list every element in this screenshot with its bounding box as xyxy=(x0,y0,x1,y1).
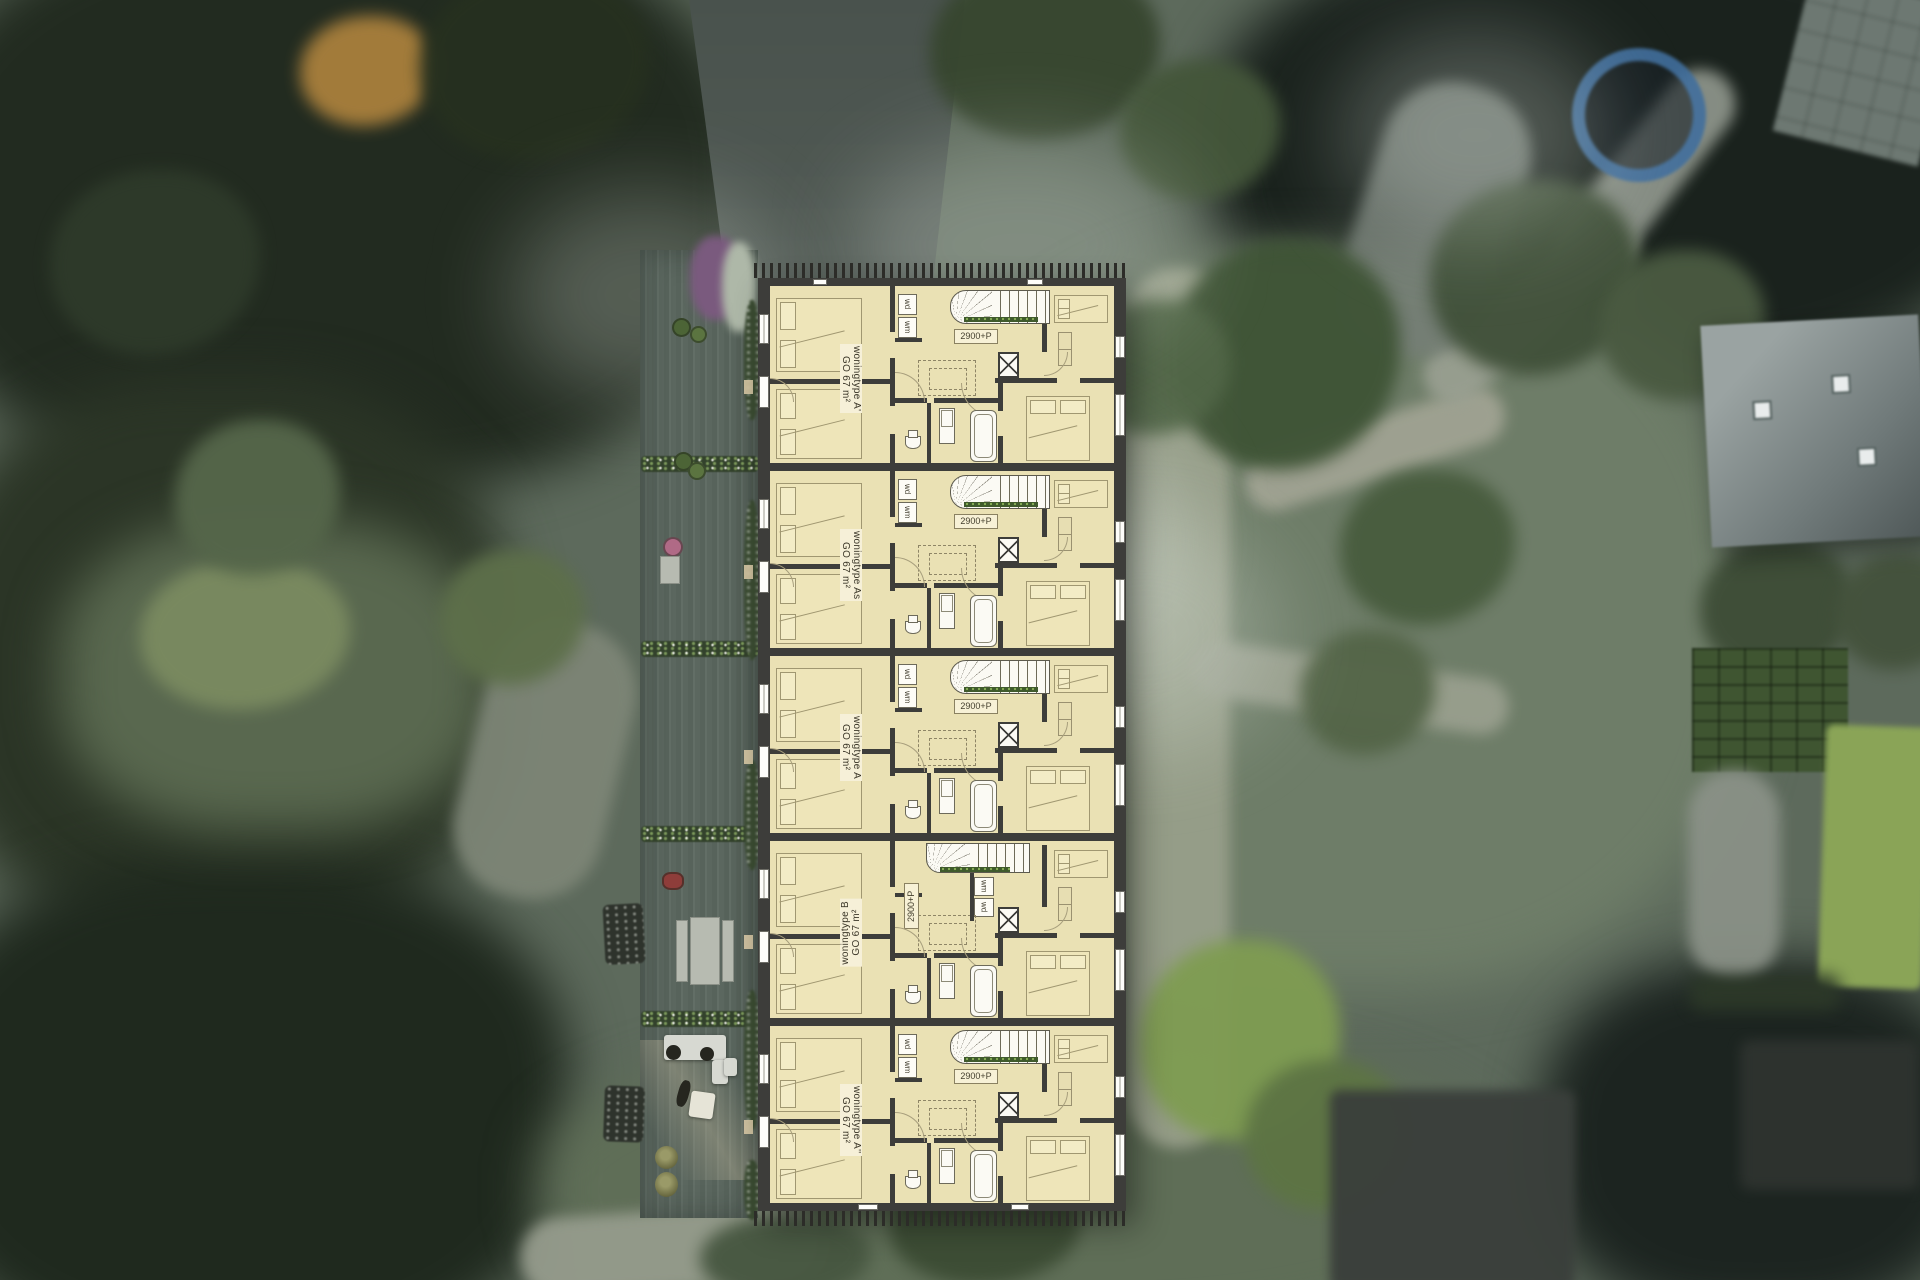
rattan-pouf xyxy=(655,1172,678,1197)
interior-wall xyxy=(998,568,1003,596)
washer-box: wd xyxy=(974,898,994,917)
window-east xyxy=(1115,521,1125,543)
bed-pillow xyxy=(780,1042,796,1070)
bed-pillow xyxy=(1060,955,1086,969)
dwelling-unit-01: wd wm 2900+P xyxy=(758,286,1126,471)
unit-area-label: GO 67 m² xyxy=(840,529,851,601)
interior-wall xyxy=(927,1143,931,1203)
bed xyxy=(1026,1136,1090,1201)
stair-green-strip xyxy=(964,317,1038,322)
unit-label: woningtype A'' GO 67 m² xyxy=(840,1084,862,1156)
bed xyxy=(1026,396,1090,461)
toilet xyxy=(905,806,921,819)
person-seated xyxy=(666,1045,681,1060)
planter-pot xyxy=(690,326,707,343)
floor-height-label: 2900+P xyxy=(954,514,998,529)
entry-door-west xyxy=(759,931,769,963)
interior-wall xyxy=(890,1174,895,1203)
unit-type-label: woningtype B xyxy=(840,899,851,967)
interior-wall xyxy=(890,619,895,648)
interior-wall xyxy=(890,1026,895,1072)
interior-wall xyxy=(995,378,1057,383)
unit-area-label: GO 67 m² xyxy=(840,1084,851,1156)
door-swing-arc xyxy=(1044,537,1068,561)
washer-box: wm xyxy=(898,317,917,338)
closet-wall xyxy=(895,338,922,342)
interior-wall xyxy=(890,471,895,517)
ventilation-shaft xyxy=(998,352,1019,378)
bed xyxy=(1026,766,1090,831)
bathroom-cabinet xyxy=(939,408,955,444)
interior-wall xyxy=(927,773,931,833)
stair-green-strip xyxy=(940,867,1010,872)
doormat xyxy=(744,1120,753,1134)
party-wall xyxy=(758,833,1126,841)
unit-area-label: GO 67 m² xyxy=(851,899,862,967)
floor-height-label: 2900+P xyxy=(954,699,998,714)
washer-box: wm xyxy=(898,502,917,523)
bathroom-cabinet xyxy=(939,593,955,629)
wall-east xyxy=(1114,656,1126,841)
toilet xyxy=(905,621,921,634)
unit-label: woningtype As GO 67 m² xyxy=(840,529,862,601)
interior-wall xyxy=(998,436,1003,463)
facade-window xyxy=(858,1204,878,1210)
floor-height-label: 2900+P xyxy=(954,1069,998,1084)
bed xyxy=(1054,1035,1108,1063)
bed-pillow xyxy=(1058,863,1070,874)
interior-wall xyxy=(998,938,1003,966)
unit-type-label: woningtype A xyxy=(851,714,862,781)
ventilation-shaft xyxy=(998,1092,1019,1118)
doormat xyxy=(744,565,753,579)
wall-east xyxy=(1114,1026,1126,1211)
bed-pillow xyxy=(780,984,796,1010)
bed xyxy=(1026,951,1090,1016)
bed-pillow xyxy=(780,799,796,825)
unit-area-label: GO 67 m² xyxy=(840,344,851,413)
bathtub xyxy=(970,410,997,462)
bed-pillow xyxy=(1058,493,1070,504)
bed-pillow xyxy=(1060,400,1086,414)
doormat xyxy=(744,380,753,394)
bathtub xyxy=(970,595,997,647)
window-east xyxy=(1115,579,1125,621)
bed-pillow xyxy=(1060,585,1086,599)
window-east xyxy=(1115,336,1125,358)
interior-wall xyxy=(770,379,890,384)
unit-type-label: woningtype A'' xyxy=(851,1084,862,1156)
interior-wall xyxy=(995,563,1057,568)
side-table xyxy=(724,1058,737,1076)
floor-height-label: 2900+P xyxy=(904,883,919,929)
bed-pillow xyxy=(780,340,796,368)
bed-pillow xyxy=(780,895,796,923)
unit-label: woningtype A' GO 67 m² xyxy=(840,344,862,413)
wall-east xyxy=(1114,841,1126,1026)
haze-patch xyxy=(1340,30,1610,240)
interior-wall xyxy=(770,749,890,754)
bed-pillow xyxy=(1060,1140,1086,1154)
door-swing-arc xyxy=(1044,722,1068,746)
unit-label: woningtype B GO 67 m² xyxy=(840,899,862,967)
interior-wall xyxy=(998,1123,1003,1151)
dryer-box: wd xyxy=(898,294,917,315)
bed xyxy=(1054,295,1108,323)
flat-roof-building xyxy=(1700,314,1920,547)
interior-wall xyxy=(995,933,1057,938)
interior-wall xyxy=(1080,933,1114,938)
facade-window xyxy=(813,279,827,285)
interior-wall xyxy=(998,806,1003,833)
deck-hedge-divider xyxy=(641,1011,758,1027)
bed-pillow xyxy=(1058,678,1070,689)
facade-wall-north xyxy=(758,278,1126,286)
interior-wall xyxy=(890,804,895,833)
bed-pillow xyxy=(1030,400,1056,414)
bed-pillow xyxy=(780,614,796,640)
bed-pillow xyxy=(780,710,796,738)
window-east xyxy=(1115,394,1125,436)
wall-east xyxy=(1114,286,1126,471)
interior-wall xyxy=(927,958,931,1018)
interior-wall xyxy=(995,748,1057,753)
interior-wall xyxy=(1080,1118,1114,1123)
interior-wall xyxy=(998,383,1003,411)
bed-pillow xyxy=(1058,308,1070,319)
dryer-box: wm xyxy=(974,877,994,896)
bed-pillow xyxy=(1030,770,1056,784)
picnic-table xyxy=(690,917,720,985)
interior-wall xyxy=(1080,563,1114,568)
entry-door-west xyxy=(759,376,769,408)
party-wall xyxy=(758,648,1126,656)
interior-wall xyxy=(890,286,895,332)
bed-pillow xyxy=(780,672,796,700)
interior-wall xyxy=(890,656,895,702)
window-east xyxy=(1115,891,1125,913)
window-east xyxy=(1115,764,1125,806)
dryer-box: wd xyxy=(898,1034,917,1055)
doormat xyxy=(744,935,753,949)
toilet xyxy=(905,1176,921,1189)
stair-green-strip xyxy=(964,502,1038,507)
dryer-box: wd xyxy=(898,479,917,500)
floor-height-label: 2900+P xyxy=(954,329,998,344)
bed-pillow xyxy=(1060,770,1086,784)
party-wall xyxy=(758,463,1126,471)
bed-pillow xyxy=(780,1080,796,1108)
party-wall xyxy=(758,1018,1126,1026)
dryer-box: wd xyxy=(898,664,917,685)
closet-wall xyxy=(895,708,922,712)
closet-wall xyxy=(970,873,974,921)
interior-wall xyxy=(770,1119,890,1124)
interior-wall xyxy=(890,841,895,887)
bed-pillow xyxy=(780,1169,796,1195)
planter-pot xyxy=(672,318,691,337)
ventilation-shaft xyxy=(998,722,1019,748)
aerial-site-plan: wd wm 2900+P xyxy=(0,0,1920,1280)
bathtub xyxy=(970,780,997,832)
deck-hedge-divider xyxy=(641,641,758,657)
apartment-building-floorplan: wd wm 2900+P xyxy=(758,278,1126,1211)
bed xyxy=(1054,850,1108,878)
facade-hatch-north xyxy=(754,263,1130,278)
door-swing-arc xyxy=(1044,352,1068,376)
dwelling-unit-03: wd wm 2900+P xyxy=(758,656,1126,841)
unit-label: woningtype A GO 67 m² xyxy=(840,714,862,781)
unit-stack: wd wm 2900+P xyxy=(758,286,1126,1211)
interior-wall xyxy=(998,991,1003,1018)
dwelling-unit-02: wd wm 2900+P xyxy=(758,471,1126,656)
interior-wall xyxy=(770,934,890,939)
bed-pillow xyxy=(780,487,796,515)
bed-pillow xyxy=(780,302,796,330)
bed-pillow xyxy=(1058,1048,1070,1059)
unit-area-label: GO 67 m² xyxy=(840,714,851,781)
interior-wall xyxy=(1080,748,1114,753)
planter-pot xyxy=(688,462,706,480)
window-east xyxy=(1115,1076,1125,1098)
doormat xyxy=(744,750,753,764)
interior-wall xyxy=(1080,378,1114,383)
toilet xyxy=(905,991,921,1004)
window-west xyxy=(759,684,769,714)
door-swing-arc xyxy=(1044,907,1068,931)
window-east xyxy=(1115,1134,1125,1176)
window-west xyxy=(759,314,769,344)
entry-door-west xyxy=(759,746,769,778)
stair-green-strip xyxy=(964,687,1038,692)
rattan-pouf xyxy=(655,1146,678,1169)
entry-door-west xyxy=(759,1116,769,1148)
deck-hedge-divider xyxy=(641,826,758,842)
facade-window xyxy=(1027,279,1043,285)
flower-pot-red xyxy=(662,872,684,890)
dwelling-unit-05: wd wm 2900+P xyxy=(758,1026,1126,1211)
facade-hatch-south xyxy=(754,1211,1130,1226)
window-west xyxy=(759,869,769,899)
stone-gabion xyxy=(603,1085,645,1142)
unit-type-label: woningtype A' xyxy=(851,344,862,413)
deck-mat xyxy=(688,1090,715,1119)
stone-gabion xyxy=(602,903,645,965)
dwelling-unit-04: wm wd 2900+P xyxy=(758,841,1126,1026)
bathtub xyxy=(970,965,997,1017)
interior-wall xyxy=(770,564,890,569)
interior-wall xyxy=(927,588,931,648)
picnic-bench xyxy=(676,920,688,982)
interior-wall xyxy=(927,403,931,463)
wall-east xyxy=(1114,471,1126,656)
picnic-bench xyxy=(722,920,734,982)
bed xyxy=(1026,581,1090,646)
closet-wall xyxy=(895,1078,922,1082)
window-west xyxy=(759,1054,769,1084)
interior-wall xyxy=(890,989,895,1018)
garden-lawn-east xyxy=(1817,724,1920,989)
bathroom-cabinet xyxy=(939,778,955,814)
closet-wall xyxy=(895,523,922,527)
bed-pillow xyxy=(780,429,796,455)
garden-hedge-east xyxy=(1690,975,1840,1011)
bathtub xyxy=(970,1150,997,1202)
bathroom-cabinet xyxy=(939,963,955,999)
interior-wall xyxy=(890,434,895,463)
roof-skylight xyxy=(1752,400,1772,420)
roof-skylight xyxy=(1831,374,1851,394)
flower-pot-pink xyxy=(663,537,683,557)
door-swing-arc xyxy=(1044,1092,1068,1116)
deck-bench xyxy=(660,556,680,584)
window-west xyxy=(759,499,769,529)
house-roof-south xyxy=(1330,1090,1575,1280)
roof-skylight xyxy=(1857,447,1877,467)
party-wall xyxy=(758,1203,1126,1211)
forest-bottom-left xyxy=(0,860,570,1280)
interior-wall xyxy=(998,753,1003,781)
facade-window xyxy=(1011,1204,1029,1210)
bed xyxy=(1054,665,1108,693)
bathroom-cabinet xyxy=(939,1148,955,1184)
interior-wall xyxy=(1042,845,1047,907)
ventilation-shaft xyxy=(998,907,1019,933)
toilet xyxy=(905,436,921,449)
interior-wall xyxy=(998,1176,1003,1203)
entry-door-west xyxy=(759,561,769,593)
house-roof-south-2 xyxy=(1740,1040,1920,1190)
unit-type-label: woningtype As xyxy=(851,529,862,601)
window-east xyxy=(1115,949,1125,991)
bed-pillow xyxy=(1030,1140,1056,1154)
washer-box: wm xyxy=(898,1057,917,1078)
person-seated xyxy=(700,1047,714,1061)
interior-wall xyxy=(998,621,1003,648)
ventilation-shaft xyxy=(998,537,1019,563)
washer-box: wm xyxy=(898,687,917,708)
bed-pillow xyxy=(1030,955,1056,969)
window-east xyxy=(1115,706,1125,728)
bed xyxy=(1054,480,1108,508)
bed-pillow xyxy=(780,525,796,553)
bed-pillow xyxy=(780,857,796,885)
interior-wall xyxy=(995,1118,1057,1123)
bed-pillow xyxy=(1030,585,1056,599)
stair-green-strip xyxy=(964,1057,1038,1062)
garden-path-east xyxy=(1688,770,1780,980)
